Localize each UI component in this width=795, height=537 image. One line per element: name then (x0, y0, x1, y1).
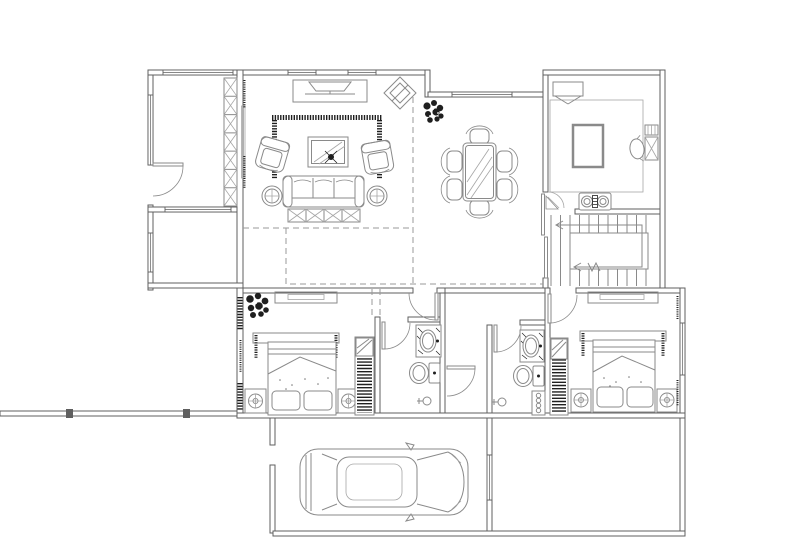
island-counter (573, 125, 603, 167)
toilet (410, 363, 441, 384)
window (348, 70, 376, 75)
wall-segment (487, 418, 492, 455)
wall-segment (375, 317, 380, 415)
bathroom-1-door (382, 322, 410, 349)
dining-chair-bottom (466, 200, 493, 218)
dining-chair-right-lower (497, 176, 518, 203)
wall-segment (148, 283, 243, 288)
window (163, 70, 233, 75)
gas-cooktop (579, 193, 611, 210)
wall-segment (437, 288, 445, 293)
corner-stand-diamond (384, 77, 416, 109)
wall-segment (408, 317, 445, 322)
window (487, 455, 492, 500)
floor-drain (417, 397, 431, 405)
dining-table (463, 143, 496, 201)
wardrobe (550, 338, 568, 415)
nightstand-right (657, 389, 677, 412)
window (148, 233, 153, 272)
window (165, 207, 231, 212)
window (288, 70, 316, 75)
dining-chair-right-upper (497, 148, 518, 175)
car-top-view (300, 443, 468, 521)
plant (246, 293, 269, 318)
vanity-sink (520, 330, 544, 362)
column-post (183, 409, 190, 418)
wall-segment (237, 70, 243, 288)
wall-segment (0, 411, 237, 416)
floor-plan-svg (0, 0, 795, 537)
wall-segment (543, 70, 665, 75)
round-side-table-right (367, 186, 387, 206)
wall-segment (487, 500, 492, 533)
window (148, 95, 153, 165)
dining-chair-top (466, 126, 493, 144)
foot-cushion (597, 387, 623, 407)
round-side-table-left (262, 186, 282, 206)
bedroom-1 (245, 292, 374, 415)
side-table-x (645, 125, 658, 160)
bedroom-2 (548, 292, 677, 415)
armchair-right (361, 140, 395, 176)
wall-segment (543, 75, 548, 192)
wall-segment (660, 70, 665, 293)
tv (305, 82, 355, 94)
floor-plan-canvas (0, 0, 795, 537)
bathroom-2-door (494, 325, 521, 352)
foot-cushion (304, 391, 332, 410)
bedroom-2-door (548, 294, 577, 323)
column-post (66, 409, 73, 418)
wall-segment (270, 465, 275, 533)
wall-segment (237, 288, 243, 418)
plant (423, 100, 443, 123)
foot-cushion (627, 387, 653, 407)
dining-chair-left-lower (441, 176, 462, 203)
bed (580, 331, 666, 412)
vanity-sink (416, 325, 441, 357)
living-room (254, 77, 443, 222)
shelf-column (532, 391, 545, 415)
wall-segment (445, 288, 548, 293)
corner-shelf (548, 192, 564, 208)
window (452, 92, 512, 97)
dining-room (441, 126, 518, 218)
study-door (153, 163, 183, 196)
suite-1-entry-door (409, 293, 438, 320)
toilet (514, 366, 545, 387)
stair-rail (570, 233, 648, 269)
floor-drain (492, 398, 506, 406)
dresser (588, 292, 658, 303)
wall-segment (487, 325, 492, 415)
staircase (551, 215, 648, 286)
wall-segment (270, 418, 275, 445)
kitchen-door-fold (546, 196, 558, 209)
dining-chair-left-upper (441, 148, 462, 175)
dresser (275, 292, 337, 303)
study-room (153, 78, 245, 206)
coffee-table (308, 137, 348, 167)
wall-segment (273, 531, 685, 536)
console-x-cabinet (288, 209, 360, 222)
bookshelf (224, 78, 237, 206)
bathroom-2 (492, 325, 545, 415)
armchair-left (254, 136, 290, 174)
foot-cushion (272, 391, 300, 410)
nightstand-left (571, 389, 591, 412)
wall-segment (243, 70, 430, 75)
refrigerator (553, 82, 583, 104)
nightstand-left (245, 389, 266, 413)
hallway-door (447, 366, 475, 396)
wall-segment (520, 320, 545, 325)
sofa (283, 176, 364, 207)
kitchen-sliding-door (542, 194, 548, 278)
window (680, 323, 685, 375)
wardrobe (355, 337, 374, 415)
bathroom-1 (382, 293, 441, 405)
garage (300, 443, 468, 521)
